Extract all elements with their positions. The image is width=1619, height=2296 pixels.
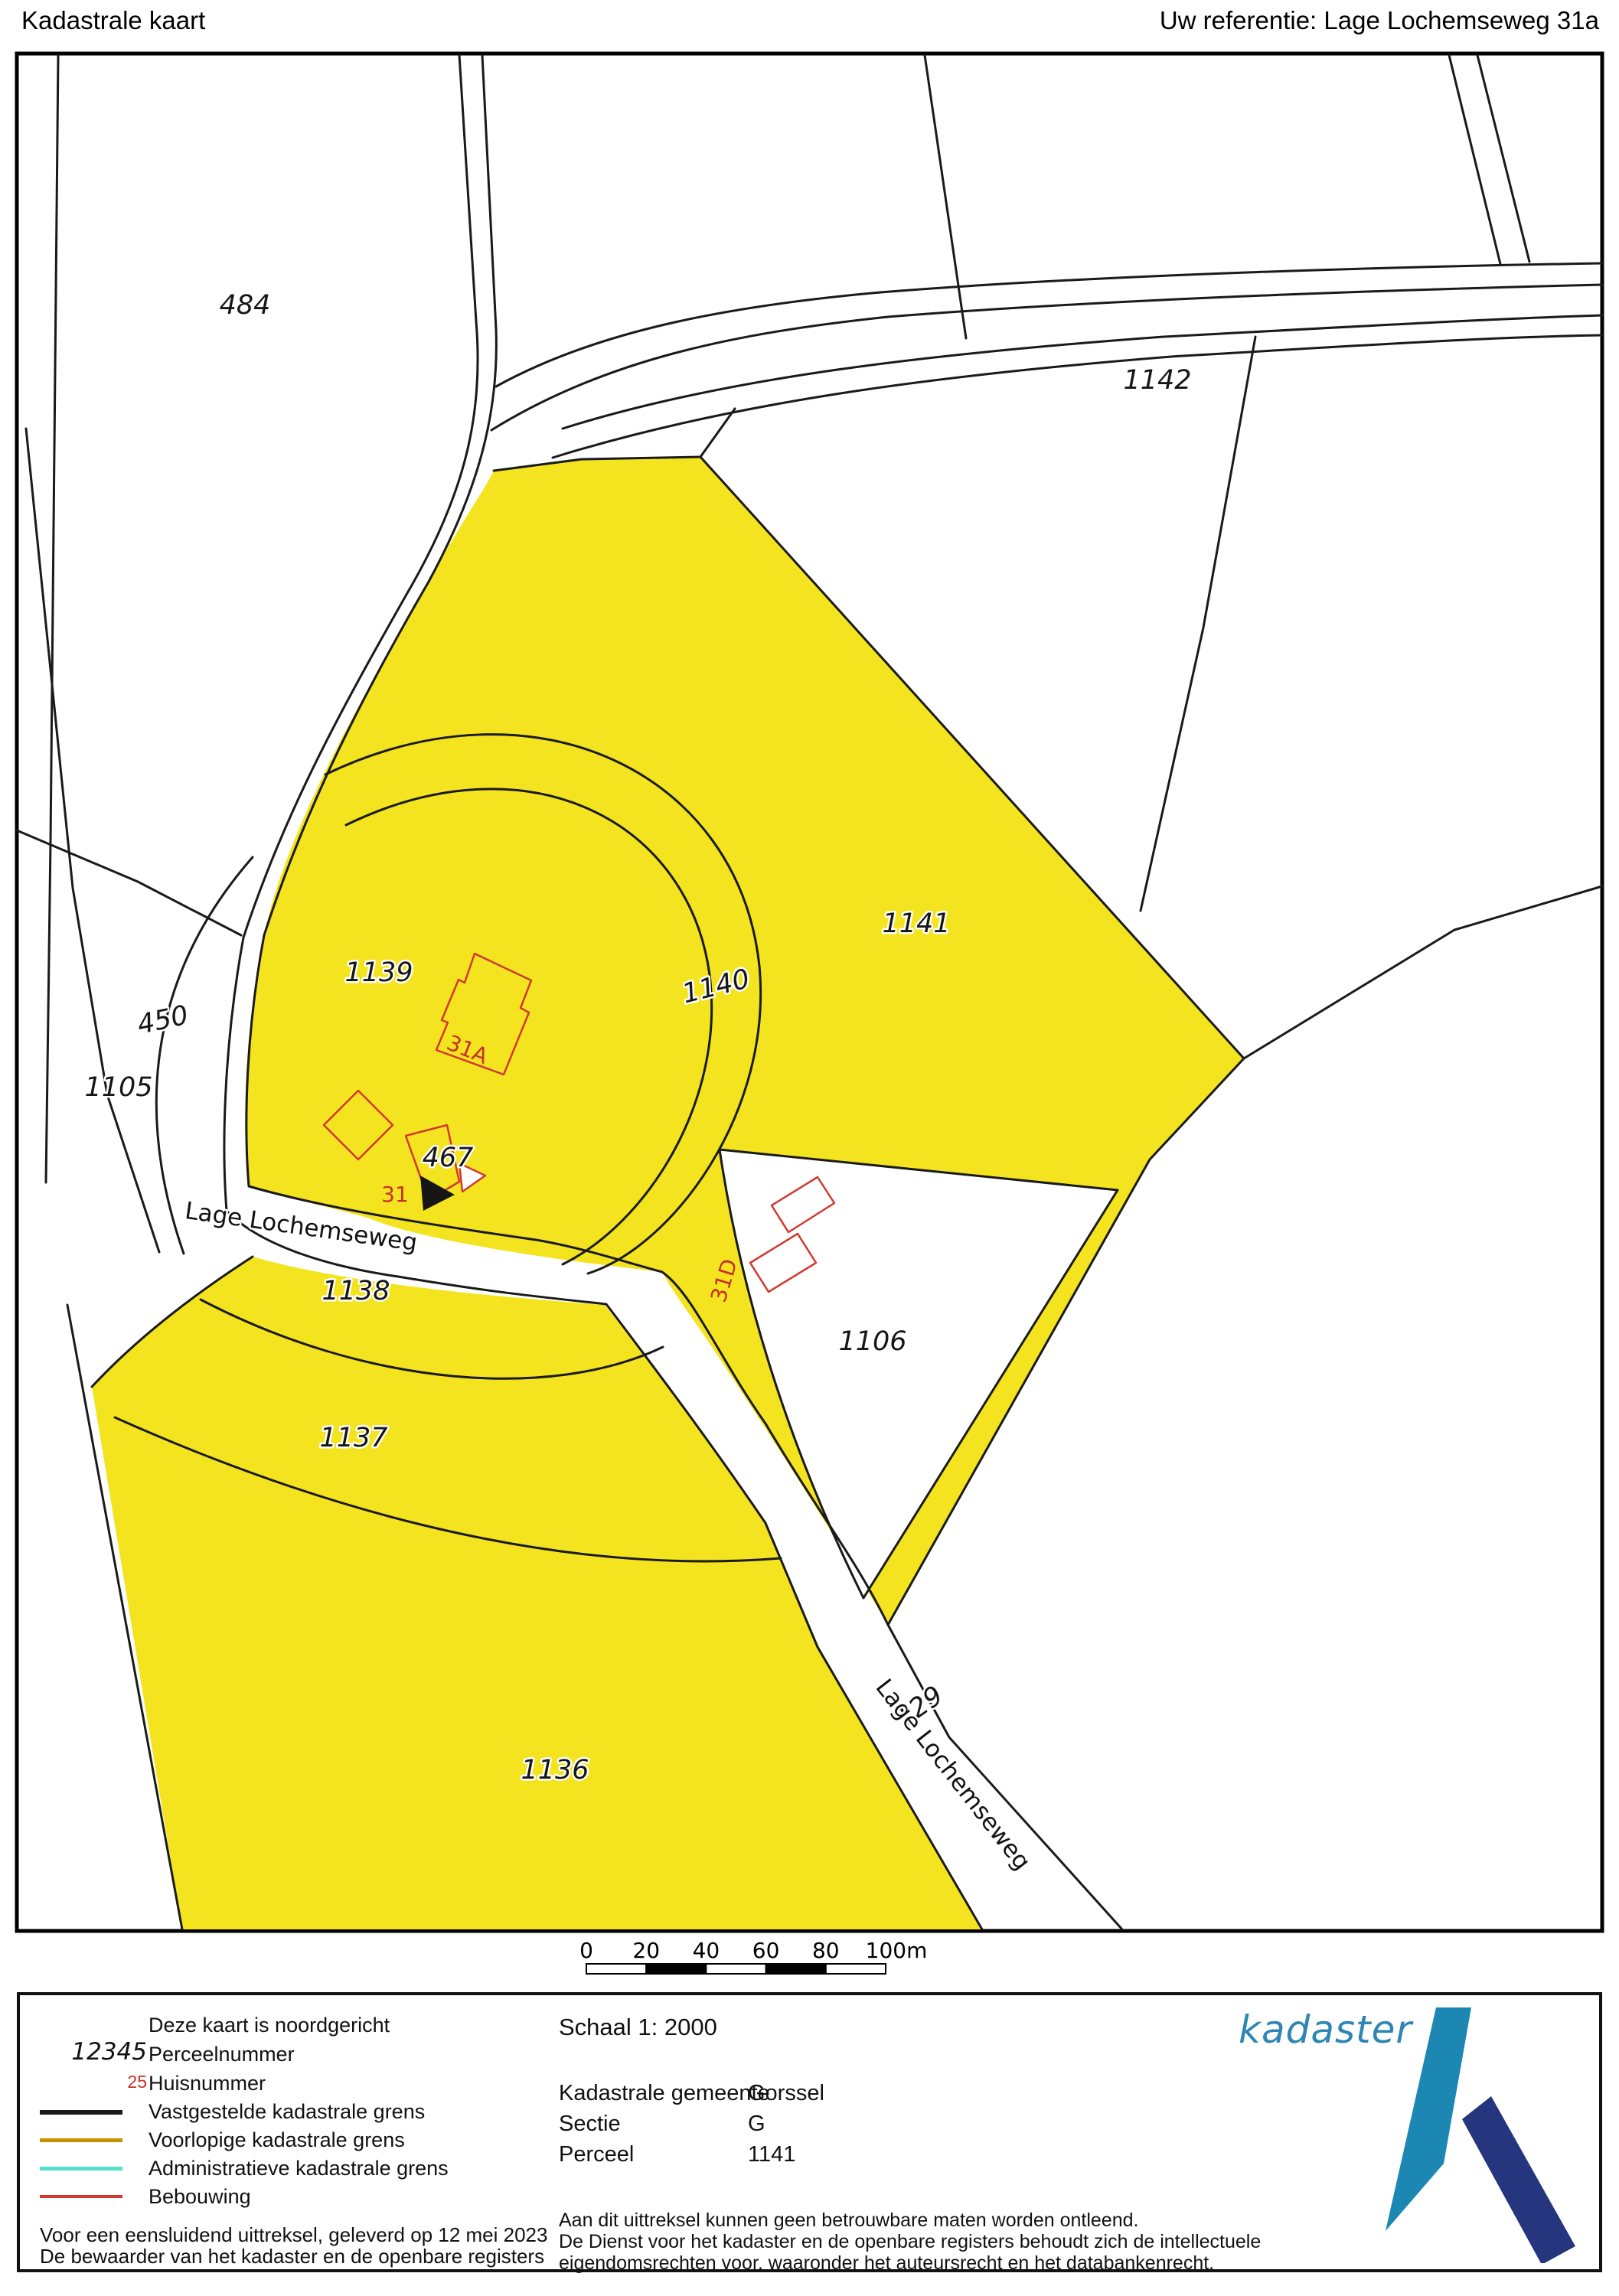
gemeente-value: Gorssel — [748, 2081, 824, 2106]
legend-administratief-label: Administratieve kadastrale grens — [149, 2157, 449, 2180]
perceel-label: Perceel — [559, 2142, 634, 2167]
scale-tick-80: 80 — [812, 1938, 840, 1963]
kadaster-logo-mark — [1366, 1995, 1595, 2263]
cadastral-map[interactable]: 4841142114111401139450110546711381137110… — [0, 0, 1619, 1990]
disclaimer-line-3: eigendomsrechten voor, waaronder het aut… — [559, 2252, 1214, 2275]
parcel-label-1139: 1139 — [344, 957, 413, 988]
scale-bar-segment — [706, 1964, 765, 1974]
scale-tick-0: 0 — [579, 1938, 593, 1963]
legend-voorlopig-label: Voorlopige kadastrale grens — [149, 2128, 405, 2152]
legend-housenumber-sample: 25 — [24, 2072, 147, 2092]
parcel-label-1141: 1141 — [882, 908, 950, 939]
perceel-value: 1141 — [748, 2142, 795, 2167]
legend-bebouwing-label: Bebouwing — [149, 2185, 251, 2209]
disclaimer-line-1: Aan dit uittreksel kunnen geen betrouwba… — [559, 2210, 1138, 2232]
scale-bar-segment — [586, 1964, 646, 1974]
parcel-label-484: 484 — [220, 290, 271, 321]
parcel-label-1142: 1142 — [1123, 365, 1191, 396]
parcel-label-1138: 1138 — [322, 1276, 390, 1306]
scale-bar-segment — [766, 1964, 826, 1974]
legend-box: Deze kaart is noordgericht 12345 Perceel… — [17, 1992, 1602, 2272]
scale-bar: 020406080100m — [579, 1938, 927, 1974]
delivery-line-2: De bewaarder van het kadaster en de open… — [40, 2245, 544, 2268]
sectie-value: G — [748, 2112, 765, 2137]
gemeente-label: Kadastrale gemeente — [559, 2081, 770, 2106]
parcel-label-1106: 1106 — [838, 1326, 906, 1357]
disclaimer-line-2: De Dienst voor het kadaster en de openba… — [559, 2231, 1261, 2253]
parcel-label-467: 467 — [423, 1143, 474, 1173]
parcel-label-1105: 1105 — [84, 1072, 152, 1103]
legend-housenumber-label: Huisnummer — [149, 2072, 266, 2095]
delivery-line-1: Voor een eensluidend uittreksel, gelever… — [40, 2223, 547, 2247]
legend-parcelnumber-sample: 12345 — [24, 2038, 147, 2066]
legend-line-vastgesteld — [40, 2110, 122, 2115]
legend-line-administratief — [40, 2167, 122, 2170]
scale-tick-100m: 100m — [866, 1938, 928, 1963]
legend-vastgesteld-label: Vastgestelde kadastrale grens — [149, 2100, 425, 2124]
parcel-label-1137: 1137 — [319, 1423, 387, 1453]
parcel-label-1136: 1136 — [521, 1755, 589, 1786]
scale-tick-60: 60 — [752, 1938, 780, 1963]
scale-tick-40: 40 — [693, 1938, 720, 1963]
scale-text: Schaal 1: 2000 — [559, 2014, 717, 2041]
north-note: Deze kaart is noordgericht — [149, 2014, 390, 2037]
page: { "header": { "title": "Kadastrale kaart… — [0, 0, 1619, 2296]
logo-pen-nib — [1386, 2007, 1471, 2231]
legend-parcelnumber-label: Perceelnummer — [149, 2043, 295, 2066]
scale-tick-20: 20 — [632, 1938, 660, 1963]
legend-line-voorlopig — [40, 2138, 122, 2142]
scale-bar-segment — [646, 1964, 706, 1974]
scale-bar-segment — [826, 1964, 886, 1974]
legend-line-bebouwing — [40, 2195, 122, 2198]
house-number-31: 31 — [381, 1182, 409, 1207]
sectie-label: Sectie — [559, 2112, 621, 2137]
logo-diagonal-bar — [1462, 2096, 1575, 2263]
